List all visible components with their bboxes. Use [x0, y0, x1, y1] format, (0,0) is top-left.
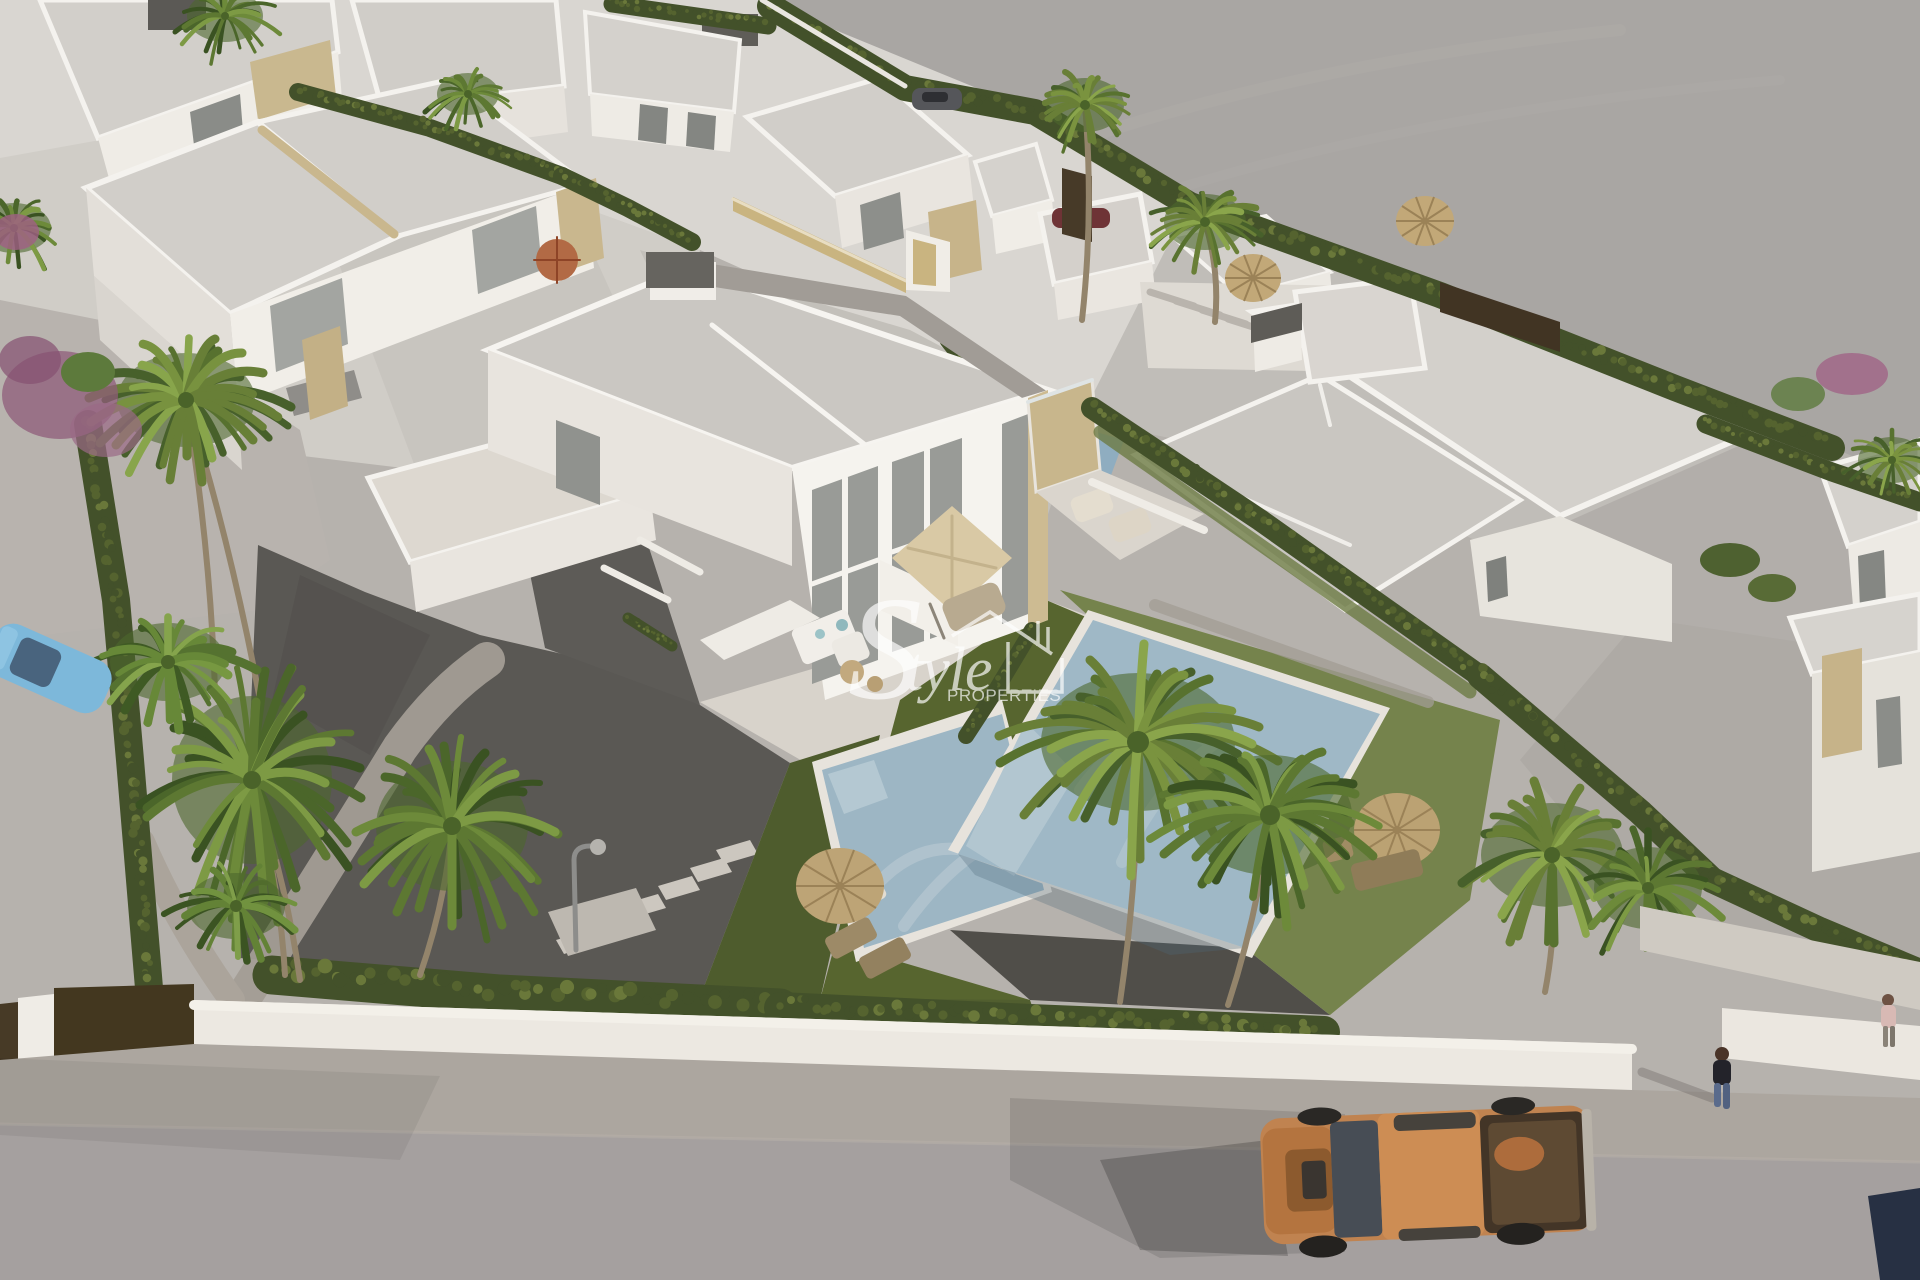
svg-text:PROPERTIES: PROPERTIES	[947, 686, 1061, 705]
